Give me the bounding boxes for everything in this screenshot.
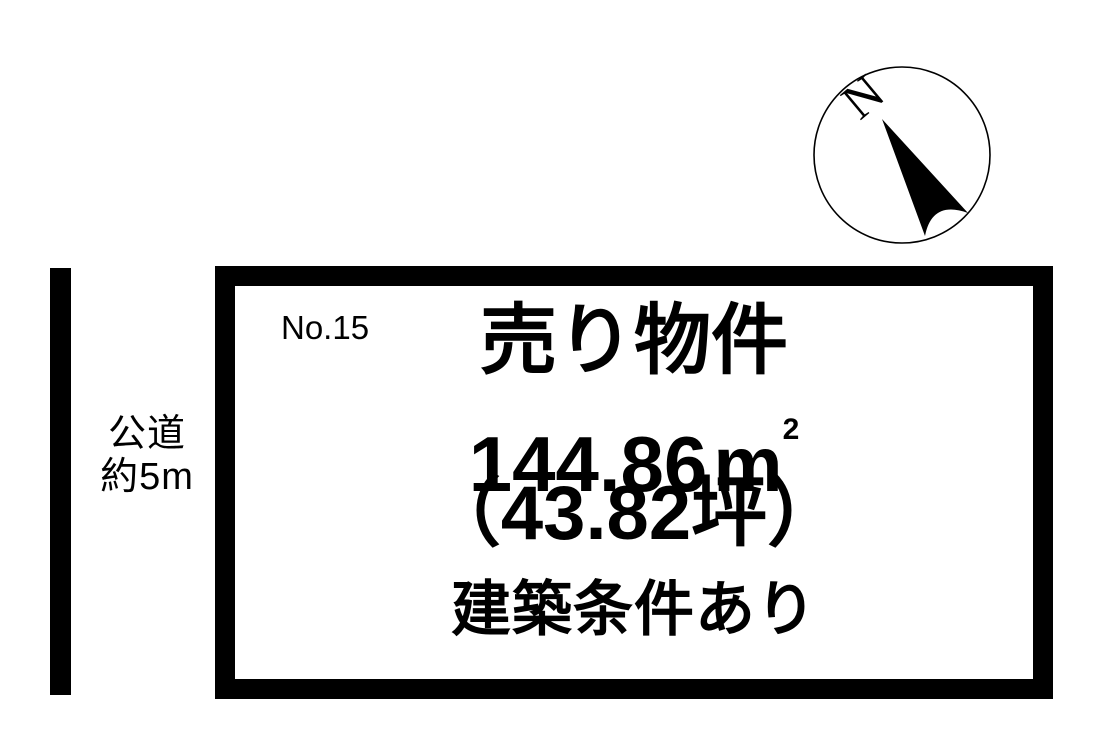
plot-title: 売り物件 — [235, 300, 1033, 382]
road-label: 公道 約5m — [90, 413, 204, 499]
compass-needle-icon — [882, 119, 968, 236]
compass-north-label: N — [831, 63, 895, 129]
plot-boundary: No.15 売り物件 144.86m2 （43.82坪） 建築条件あり — [215, 266, 1053, 699]
plot-area-tsubo: （43.82坪） — [235, 472, 1033, 556]
plot-area-superscript: 2 — [783, 413, 800, 446]
plot-note: 建築条件あり — [235, 576, 1033, 644]
road-edge-line — [50, 268, 71, 695]
road-label-line2: 約5m — [90, 456, 204, 499]
land-plot-diagram: N 公道 約5m No.15 売り物件 144.86m2 （43.82坪） 建築… — [0, 0, 1104, 730]
road-label-line1: 公道 — [90, 413, 204, 456]
